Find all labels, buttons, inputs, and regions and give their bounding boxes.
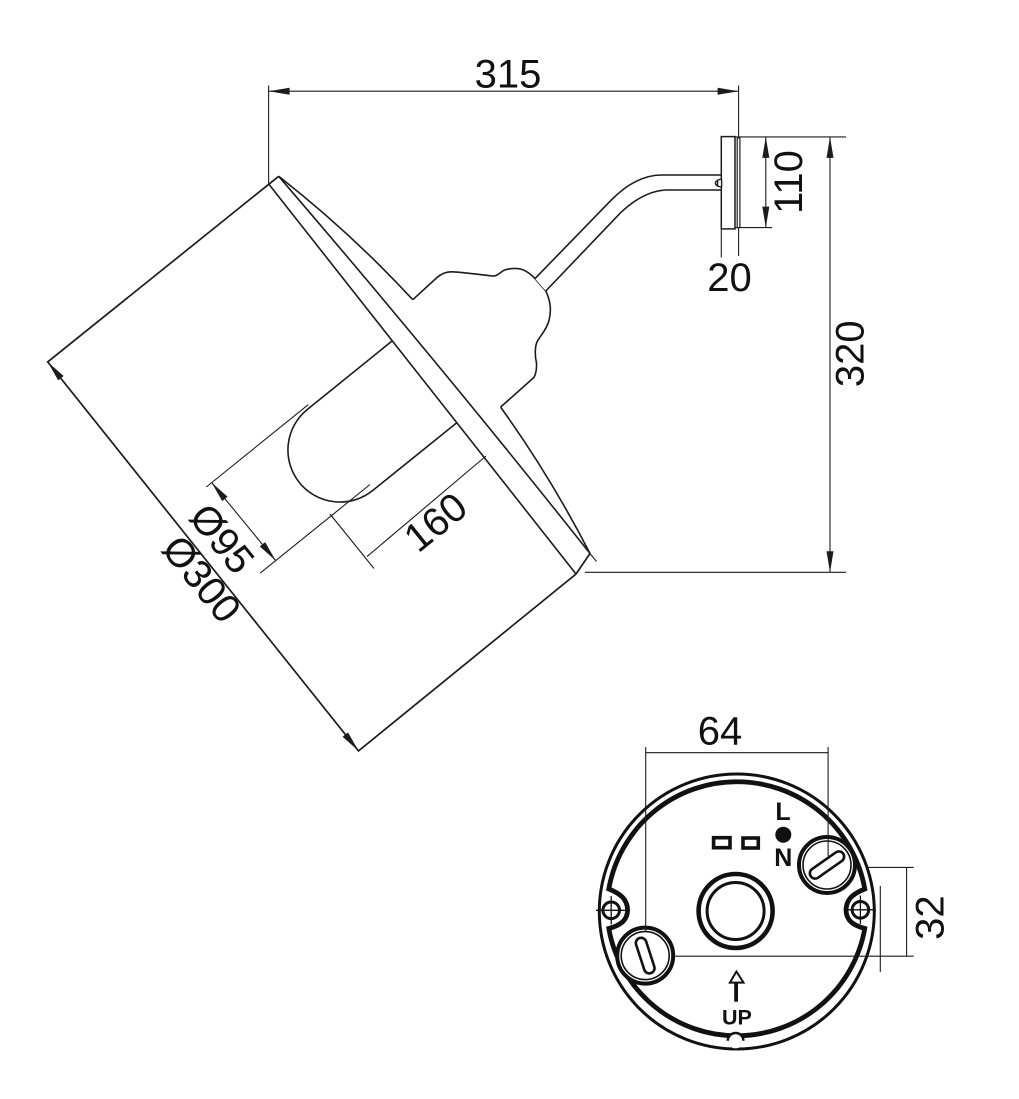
svg-text:32: 32 bbox=[909, 895, 953, 940]
svg-text:320: 320 bbox=[829, 320, 873, 387]
svg-text:N: N bbox=[774, 844, 792, 872]
svg-text:110: 110 bbox=[767, 150, 811, 214]
svg-text:315: 315 bbox=[475, 53, 542, 97]
svg-text:UP: UP bbox=[722, 1006, 752, 1030]
svg-text:L: L bbox=[775, 798, 790, 826]
svg-text:20: 20 bbox=[707, 256, 752, 300]
svg-text:64: 64 bbox=[698, 710, 743, 754]
